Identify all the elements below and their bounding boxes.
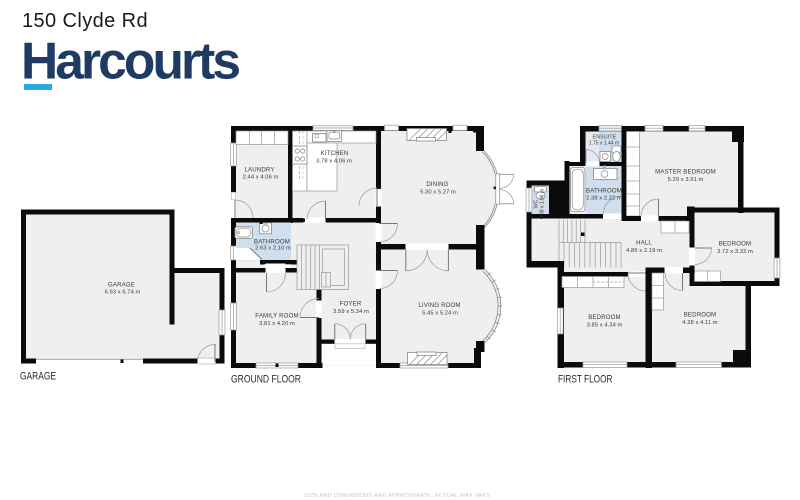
svg-text:GROUND FLOOR: GROUND FLOOR: [231, 374, 301, 386]
svg-text:FAMILY ROOM: FAMILY ROOM: [255, 313, 298, 320]
svg-text:BATHROOM: BATHROOM: [254, 239, 290, 246]
svg-text:BEDROOM: BEDROOM: [588, 314, 621, 321]
svg-text:4.86 x 2.19 m: 4.86 x 2.19 m: [626, 248, 662, 254]
svg-text:5.30 x 5.27 m: 5.30 x 5.27 m: [420, 190, 456, 196]
svg-text:150 Clyde Rd: 150 Clyde Rd: [22, 10, 148, 32]
svg-text:5.45 x 5.24 m: 5.45 x 5.24 m: [422, 311, 458, 317]
svg-text:MASTER BEDROOM: MASTER BEDROOM: [655, 169, 716, 176]
svg-text:4.28 x 4.11 m: 4.28 x 4.11 m: [682, 320, 717, 326]
svg-text:1.75 x 1.44 m: 1.75 x 1.44 m: [589, 140, 619, 146]
svg-text:Harcourts: Harcourts: [21, 32, 239, 90]
svg-text:3.81 x 4.20 m: 3.81 x 4.20 m: [259, 321, 295, 327]
svg-text:6.93 x 6.74 m: 6.93 x 6.74 m: [105, 290, 141, 296]
svg-text:2.44 x 4.06 m: 2.44 x 4.06 m: [243, 175, 279, 181]
svg-text:DINING: DINING: [426, 181, 448, 188]
svg-text:HALL: HALL: [636, 240, 652, 247]
svg-text:2.63 x 2.10 m: 2.63 x 2.10 m: [255, 246, 291, 252]
svg-text:FIRST FLOOR: FIRST FLOOR: [558, 374, 613, 386]
svg-text:KITCHEN: KITCHEN: [321, 150, 349, 157]
svg-text:SIZE AND DIMENSIONS ARE APPROX: SIZE AND DIMENSIONS ARE APPROXIMATE, ACT…: [304, 493, 491, 499]
svg-text:BEDROOM: BEDROOM: [719, 241, 752, 248]
svg-text:3.59 x 5.34 m: 3.59 x 5.34 m: [333, 309, 369, 315]
svg-text:BATHROOM: BATHROOM: [586, 188, 622, 195]
svg-text:2.38 x 2.22 m: 2.38 x 2.22 m: [586, 196, 622, 202]
svg-text:5.29 x 3.91 m: 5.29 x 3.91 m: [668, 177, 704, 183]
svg-text:LIVING ROOM: LIVING ROOM: [418, 302, 460, 309]
svg-text:3.85 x 4.34 m: 3.85 x 4.34 m: [587, 323, 623, 329]
svg-text:LAUNDRY: LAUNDRY: [244, 167, 274, 174]
svg-text:BEDROOM: BEDROOM: [684, 312, 717, 319]
svg-text:GARAGE: GARAGE: [108, 282, 135, 289]
svg-text:GARAGE: GARAGE: [20, 371, 56, 383]
svg-text:FOYER: FOYER: [340, 301, 362, 308]
svg-text:3.78 x 4.06 m: 3.78 x 4.06 m: [316, 159, 352, 165]
svg-text:3.72 x 3.32 m: 3.72 x 3.32 m: [717, 249, 753, 255]
svg-text:0.98 x 1.96 m: 0.98 x 1.96 m: [540, 189, 546, 219]
